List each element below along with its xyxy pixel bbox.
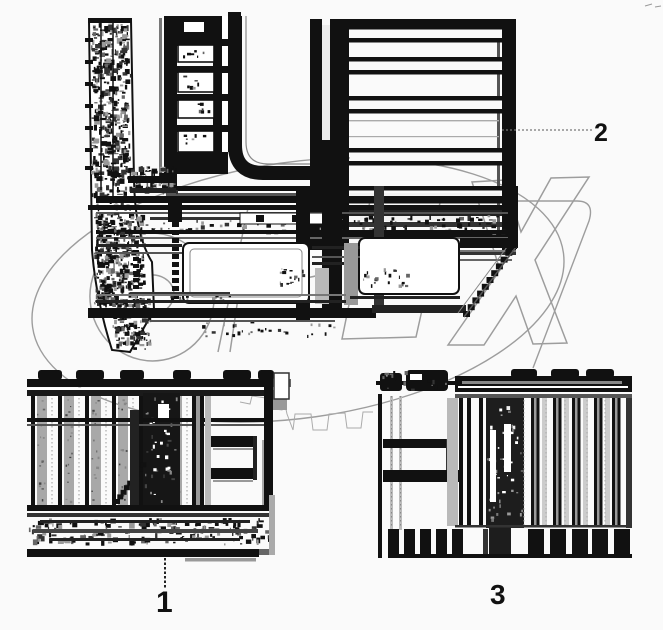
svg-text:1: 1 (156, 586, 173, 619)
svg-text:2: 2 (594, 119, 608, 147)
svg-text:3: 3 (490, 579, 506, 610)
